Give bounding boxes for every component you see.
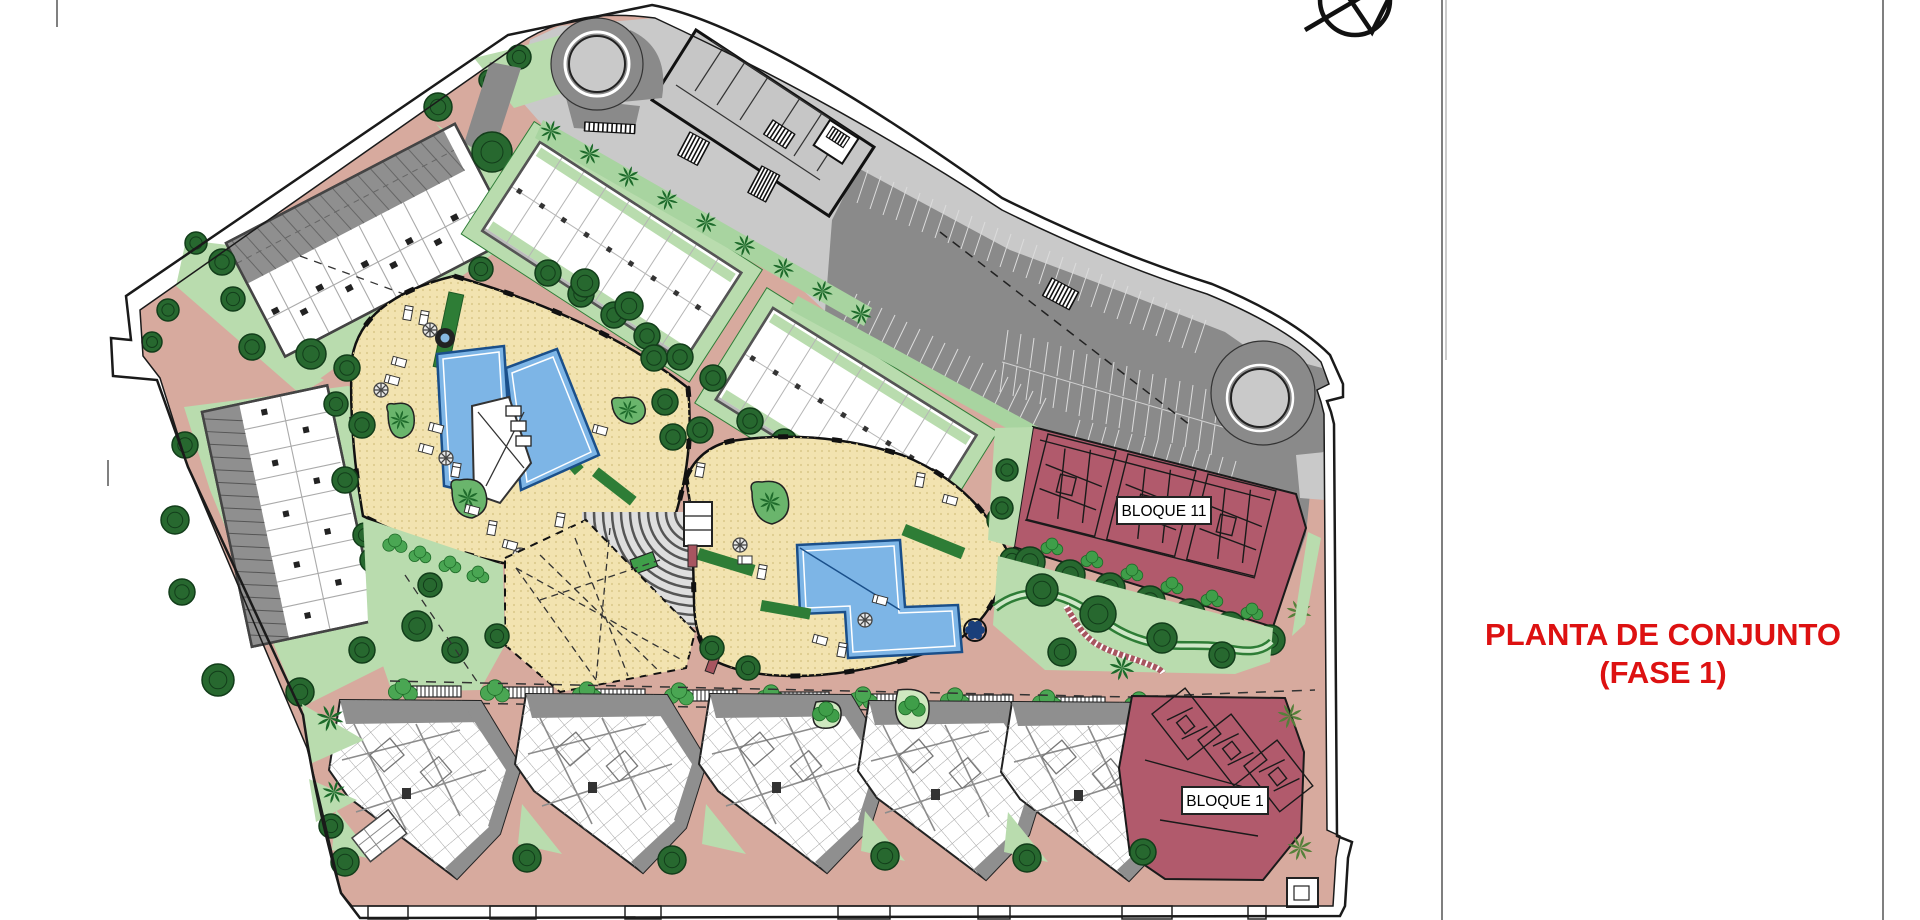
- svg-text:BLOQUE 1: BLOQUE 1: [1186, 793, 1264, 810]
- svg-text:(FASE 1): (FASE 1): [1599, 655, 1726, 690]
- svg-text:BLOQUE 11: BLOQUE 11: [1121, 503, 1206, 520]
- svg-text:PLANTA DE CONJUNTO: PLANTA DE CONJUNTO: [1485, 617, 1841, 652]
